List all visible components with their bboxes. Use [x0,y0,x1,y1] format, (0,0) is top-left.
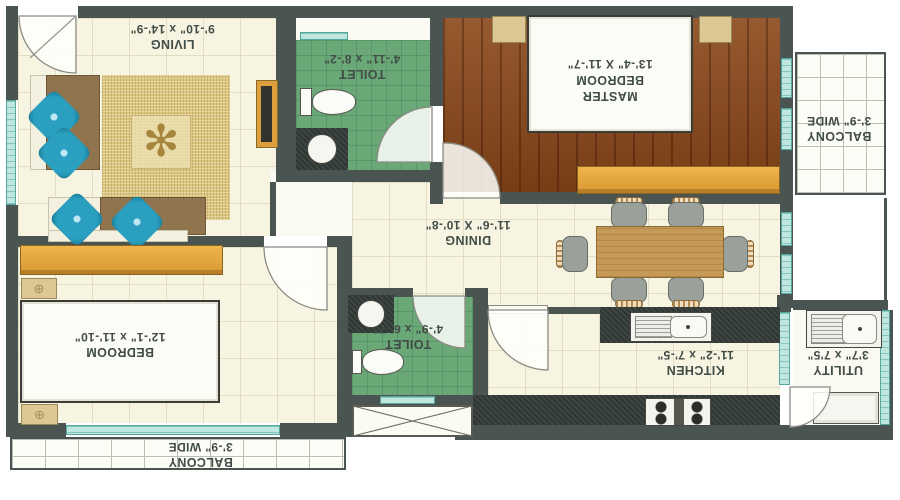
dining-chair [722,236,748,272]
utility-sink-bowl [842,314,877,344]
kitchen-label: KITCHEN 11'-2" x 7'-5" [618,346,773,378]
balcony-top-dims: 3'-9" WIDE [793,112,885,128]
utility-dims: 3'7" x 7'5" [793,346,883,362]
wall-left-mid [6,205,18,236]
toilet2-wc-tank [352,350,362,374]
living-label: LIVING 9'-10" x 14'-9" [95,20,250,52]
bedroom-nightstand-bottom: ⊕ [21,404,58,425]
wall-center-vertical [337,236,352,437]
wall-master-right [780,6,793,204]
wall-toilet1-master-upper [430,6,443,106]
floor-plan: ✻ ⊕ ⊕ [0,0,900,500]
bedroom-nightstand-top: ⊕ [21,278,57,299]
toilet1-wc-tank [300,88,312,116]
wall-entrance-corner [6,6,18,18]
living-window [6,100,16,205]
living-dims: 9'-10" x 14'-9" [95,20,250,36]
kitchen-door-leaf [488,305,548,314]
wall-bottom-right [455,425,893,440]
master-nightstand-right [699,16,732,43]
kitchen-utility-window [779,312,790,385]
toilet1-name: TOILET [302,66,422,82]
balcony-bottom-label: BALCONY 3'-9" WIDE [118,438,283,470]
kitchen-name: KITCHEN [618,362,773,378]
toilet1-dims: 4'-11" x 8'-2" [302,50,422,66]
utility-sink-drainboard [811,314,846,344]
washing-machine [813,392,879,424]
wall-left-upper [6,18,18,100]
dining-name: DINING [388,232,548,248]
utility-right-edge [890,310,893,425]
balcony-top-label: BALCONY 3'-9" WIDE [793,112,885,144]
wall-foyer-thin [270,182,276,236]
dining-table [596,226,724,278]
wall-toilet1-bottom [276,170,442,182]
kitchen-hob [645,398,711,426]
master-wardrobe [577,166,780,194]
master-nightstand-left [492,16,526,43]
master-bedroom-label: MASTER BEDROOM 13'-4" X 11'-7" [545,56,675,104]
master-window-1 [781,58,792,98]
bedroom-dims: 12'-1" x 11'-10" [45,328,195,344]
utility-sink [806,310,882,348]
duct-shaft [352,405,473,437]
utility-label: UTILITY 3'7" x 7'5" [793,346,883,378]
bedroom-window [66,425,280,435]
toilet1-basin [307,134,337,164]
balcony-bottom-name: BALCONY [118,454,283,470]
master-window-2 [781,108,792,150]
toilet1-wc-bowl [312,89,356,115]
tv [261,86,272,142]
wall-utility-top [793,300,888,310]
wall-left-lower [6,236,18,423]
wall-toilet1-master-lower [430,162,443,204]
bedroom-name: BEDROOM [45,344,195,360]
living-name: LIVING [95,36,250,52]
dining-label: DINING 11'-6" X 10'-8" [388,216,548,248]
toilet2-wc-bowl [362,349,404,375]
toilet2-dims: 4'-9" x 6'-7" [352,320,464,336]
toilet2-label: TOILET 4'-9" x 6'-7" [352,320,464,352]
balcony-bottom-dims: 3'-9" WIDE [118,438,283,454]
kitchen-counter-bottom [473,395,780,425]
dining-window-1 [781,212,792,246]
dining-window-2 [781,254,792,294]
toilet2-window [380,396,435,404]
kitchen-sink-bowl [670,316,707,338]
toilet1-label: TOILET 4'-11" x 8'-2" [302,50,422,82]
outer-edge-right [884,198,887,308]
wall-bedroom-bottom-left [6,423,66,437]
kitchen-dims: 11'-2" x 7'-5" [618,346,773,362]
utility-name: UTILITY [793,362,883,378]
master-bedroom-dims: 13'-4" X 11'-7" [545,56,675,72]
dining-chair [668,202,704,228]
toilet2-name: TOILET [352,336,464,352]
bedroom-wardrobe [20,245,223,275]
master-bedroom-name: MASTER BEDROOM [564,72,656,105]
bedroom-label: BEDROOM 12'-1" x 11'-10" [45,328,195,360]
wall-living-toilet1 [276,18,296,182]
dining-chair [611,202,647,228]
toilet1-vent-window [300,32,348,40]
rug-motif: ✻ [131,115,191,169]
balcony-top-name: BALCONY [793,128,885,144]
dining-dims: 11'-6" X 10'-8" [388,216,548,232]
kitchen-sink [630,312,712,342]
kitchen-sink-drainboard [635,316,672,338]
dining-chair [562,236,588,272]
wall-kitchen-top [548,307,600,314]
